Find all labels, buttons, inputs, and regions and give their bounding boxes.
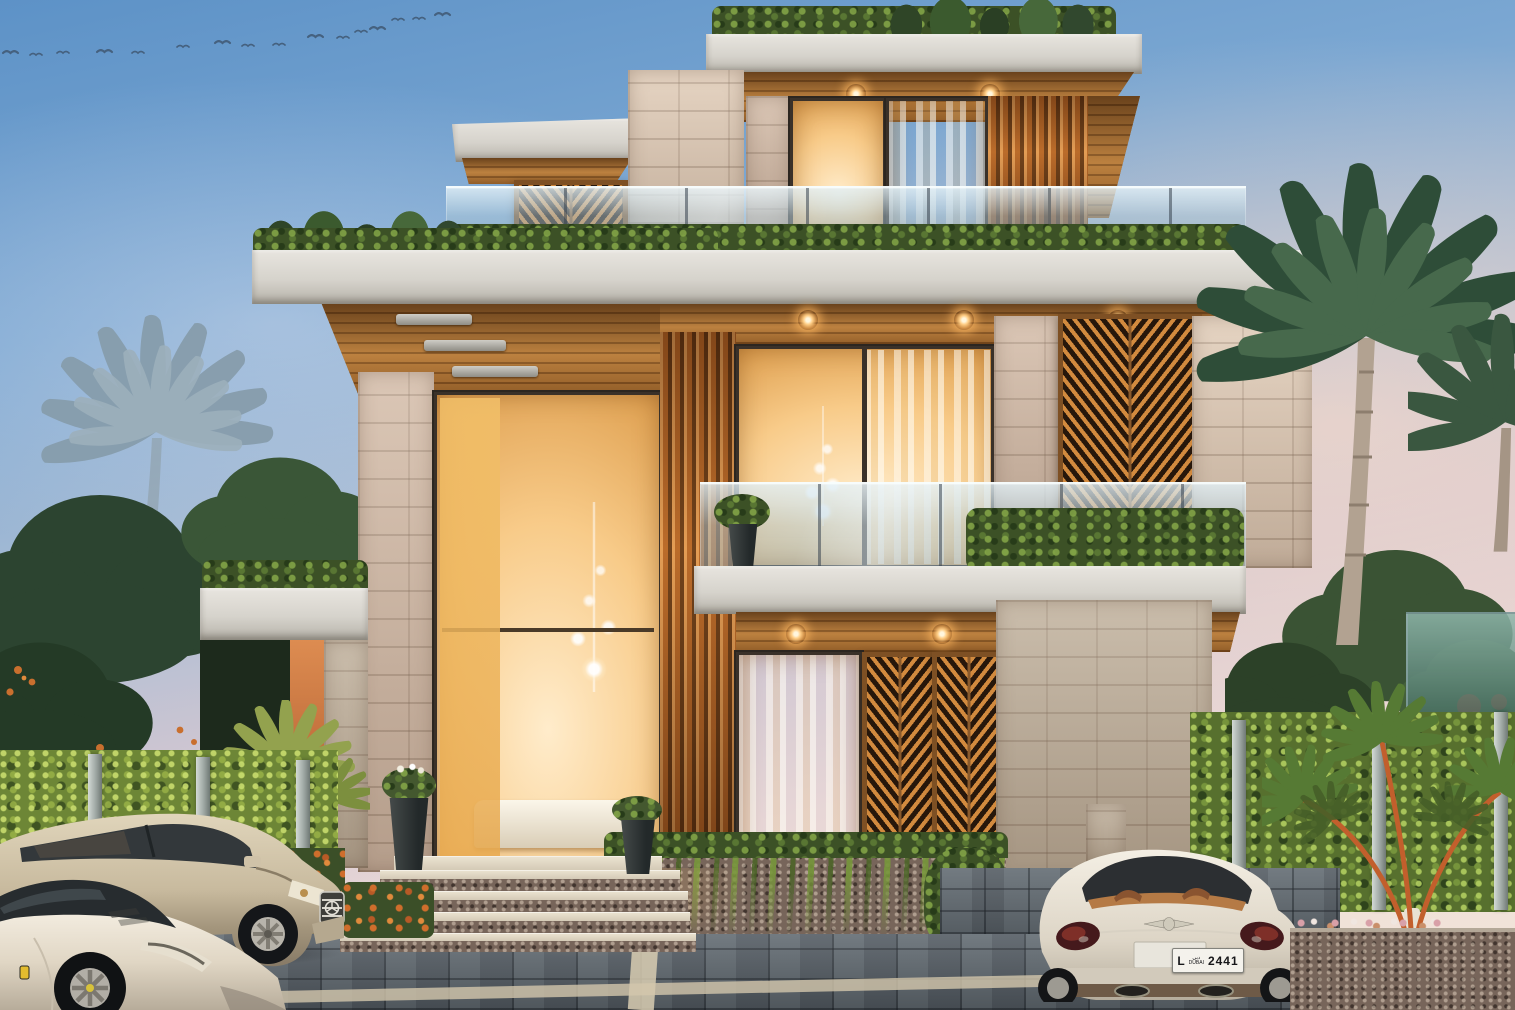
soffit-vent-strip — [396, 314, 472, 325]
soffit-vent-strip — [424, 340, 506, 351]
downlight — [786, 624, 806, 644]
bubble-chandelier — [554, 502, 634, 692]
vase-plant-right — [612, 796, 662, 824]
soffit-vent-strip — [452, 366, 538, 377]
ferrari-shield-badge — [20, 966, 29, 979]
bentley-exhaust-right — [1199, 985, 1233, 997]
annex-green-roof — [202, 560, 368, 590]
open-gold-door-panel — [440, 398, 500, 866]
bentley-exhaust-left — [1115, 985, 1149, 997]
entry-landing — [394, 856, 662, 870]
suv-mirror — [244, 856, 261, 867]
plate-code: L — [1177, 954, 1184, 968]
penthouse-roof-slab — [706, 34, 1142, 74]
granite-planter-box — [1290, 928, 1515, 1010]
flower-bed-by-steps — [342, 882, 434, 938]
upper-annex-roof — [452, 118, 644, 162]
license-plate: L دبي DUBAI 2441 — [1172, 948, 1244, 973]
rooftop-plants — [880, 0, 1100, 34]
downlight — [798, 310, 818, 330]
white-blossoms — [392, 762, 426, 776]
step-riser — [340, 941, 696, 952]
ferrari-sports-car — [0, 868, 294, 1010]
plate-city: دبي DUBAI — [1189, 956, 1204, 966]
downlight — [932, 624, 952, 644]
villa-rendering-scene: L دبي DUBAI 2441 — [0, 0, 1515, 1010]
annex-roof-slab — [200, 588, 368, 640]
palm-tree-far-right — [1408, 300, 1515, 560]
downlight — [954, 310, 974, 330]
plate-city-english: DUBAI — [1189, 961, 1204, 966]
plate-number: 2441 — [1208, 954, 1239, 968]
